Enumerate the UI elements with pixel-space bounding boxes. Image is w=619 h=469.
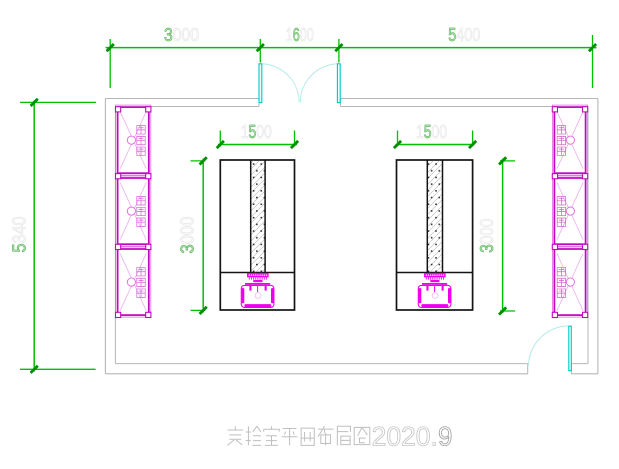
svg-text:3000: 3000 xyxy=(177,217,197,254)
svg-text:9: 9 xyxy=(438,421,452,451)
svg-text:5400: 5400 xyxy=(448,25,480,45)
svg-text:3000: 3000 xyxy=(164,25,199,45)
svg-text:3000: 3000 xyxy=(477,219,497,253)
svg-text:1500: 1500 xyxy=(241,122,272,142)
svg-text:1600: 1600 xyxy=(286,25,314,45)
svg-text:1500: 1500 xyxy=(416,122,447,142)
svg-text:2020.: 2020. xyxy=(372,421,438,451)
svg-text:5340: 5340 xyxy=(10,217,30,253)
